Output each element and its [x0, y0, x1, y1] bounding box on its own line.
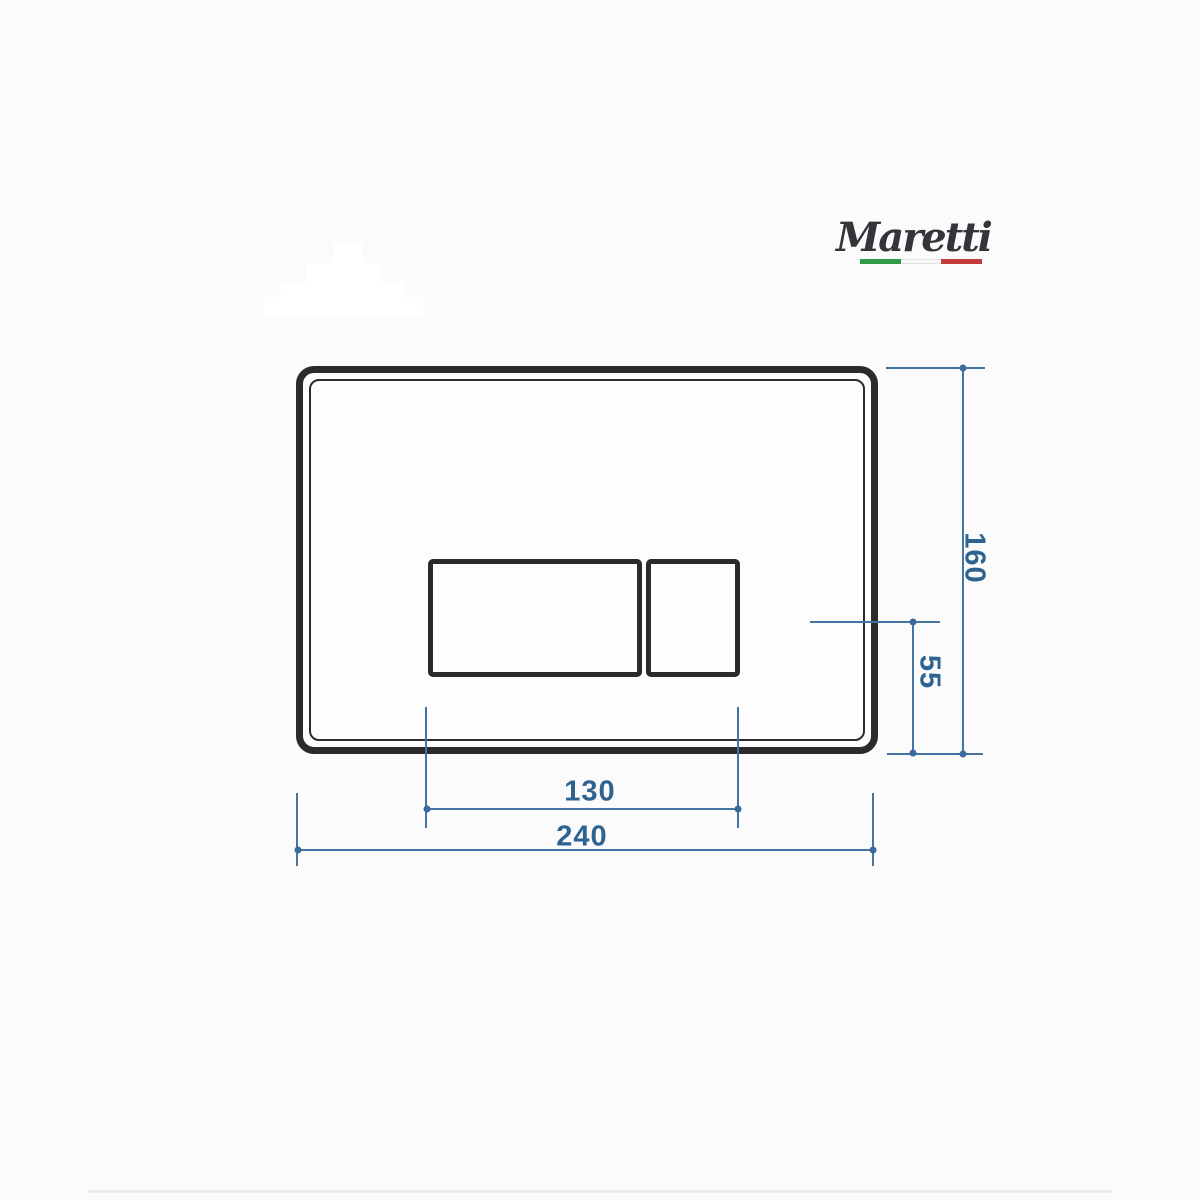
flag-white-segment	[901, 259, 942, 264]
height-extension-line-top	[886, 367, 985, 369]
flag-red-segment	[941, 259, 982, 264]
dimension-endpoint-dot	[295, 847, 302, 854]
offset-extension-line	[810, 621, 940, 623]
width-dimension-label: 240	[556, 821, 607, 854]
small-flush-button	[646, 559, 740, 677]
watermark-blob	[263, 238, 423, 316]
dimension-endpoint-dot	[960, 751, 967, 758]
drawing-canvas: Maretti 160 55 130 240	[0, 0, 1200, 1200]
dimension-endpoint-dot	[424, 806, 431, 813]
width-extension-line-right	[872, 793, 874, 866]
large-flush-button	[428, 559, 642, 677]
flag-green-segment	[860, 259, 901, 264]
height-extension-line-bottom	[887, 753, 983, 755]
dimension-endpoint-dot	[910, 619, 917, 626]
dimension-endpoint-dot	[870, 847, 877, 854]
dimension-endpoint-dot	[910, 750, 917, 757]
offset-dimension-label: 55	[913, 655, 946, 689]
buttons-width-dimension-label: 130	[564, 776, 615, 809]
height-dimension-label: 160	[958, 532, 991, 583]
brand-logo-text: Maretti	[836, 218, 1006, 258]
dimension-endpoint-dot	[735, 806, 742, 813]
brand-logo: Maretti	[836, 218, 1006, 264]
dimension-endpoint-dot	[960, 365, 967, 372]
bottom-separator-line	[88, 1190, 1112, 1193]
italian-flag-bar	[860, 259, 982, 264]
width-extension-line-left	[296, 793, 298, 866]
